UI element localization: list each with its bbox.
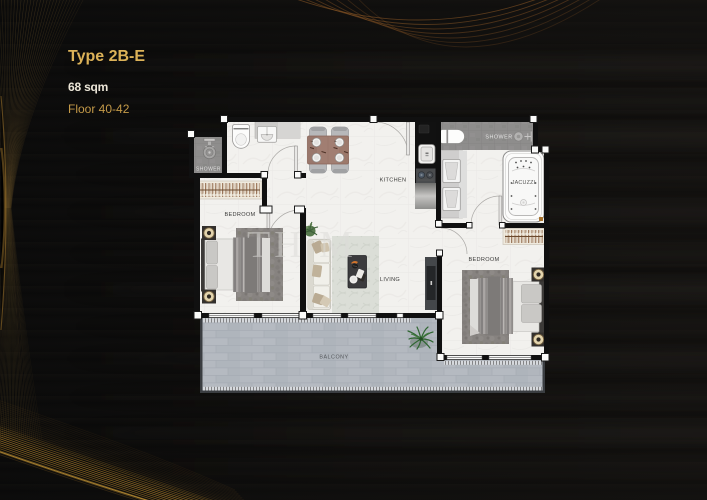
svg-text:BEDROOM: BEDROOM [468, 257, 499, 263]
svg-text:BEDROOM: BEDROOM [224, 212, 255, 218]
svg-text:SHOWER: SHOWER [485, 135, 512, 141]
svg-text:BALCONY: BALCONY [319, 355, 348, 361]
svg-text:JACUZZI: JACUZZI [512, 180, 536, 186]
svg-text:SHOWER: SHOWER [196, 167, 221, 173]
svg-text:LIVING: LIVING [380, 277, 400, 283]
svg-text:KITCHEN: KITCHEN [380, 178, 407, 184]
